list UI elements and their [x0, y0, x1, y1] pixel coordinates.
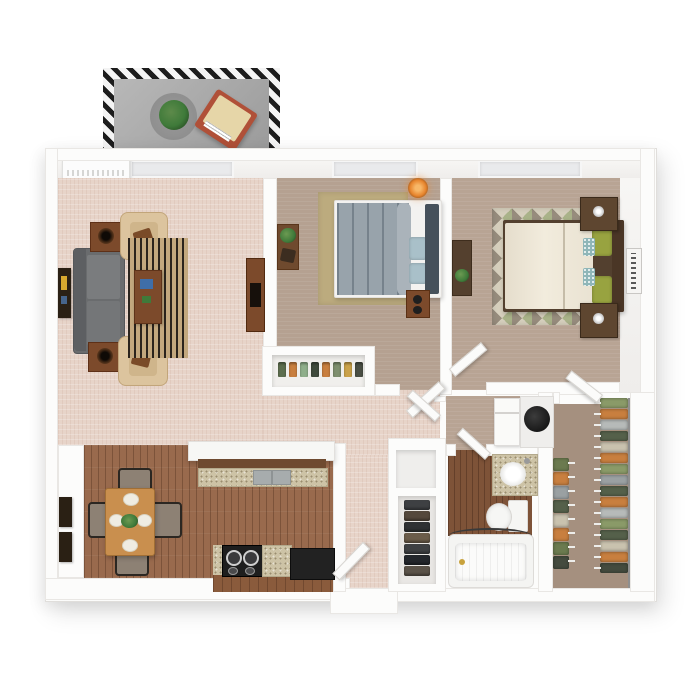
balcony-plant — [159, 100, 189, 130]
shoe-pair — [404, 555, 430, 565]
closet-rack-left — [553, 458, 569, 569]
coffee-table — [134, 270, 162, 324]
nightstand-lamp — [593, 313, 604, 324]
floor-plan — [0, 0, 697, 697]
desk-chair — [280, 248, 296, 264]
shoe-item — [322, 362, 330, 377]
desk-plant — [280, 228, 296, 243]
shoe-item — [355, 362, 363, 377]
kitchen-sink — [253, 470, 291, 485]
toilet-bowl — [486, 503, 512, 531]
counter-black-section — [290, 548, 335, 580]
shoe-item — [300, 362, 308, 377]
garment — [600, 563, 628, 573]
garment — [600, 497, 628, 507]
sink-faucet — [524, 458, 530, 464]
washer — [494, 398, 520, 446]
tv-console — [246, 258, 265, 332]
counter-granite-block — [262, 545, 292, 577]
shoe-item — [289, 362, 297, 377]
bathtub-basin — [455, 543, 527, 581]
master-desk — [452, 240, 472, 296]
garment — [600, 486, 628, 496]
master-pillow-green — [592, 276, 612, 304]
closet-rod — [628, 398, 630, 588]
stove-burner — [226, 550, 242, 566]
master-nightstand — [580, 197, 618, 231]
duvet-fold — [563, 223, 565, 309]
plate — [122, 539, 138, 552]
garment — [553, 472, 569, 485]
tv-console-screen — [250, 283, 261, 307]
shoe-item — [344, 362, 352, 377]
master-pillow-teal — [583, 268, 595, 286]
sink-divider — [271, 471, 273, 484]
shoe-item — [278, 362, 286, 377]
stove — [222, 545, 264, 577]
speaker-stand — [88, 342, 122, 372]
master-wall-plaque — [626, 248, 642, 294]
garment — [600, 442, 628, 452]
coat-closet-shelf — [396, 450, 436, 488]
bath-doorframe-stub — [446, 444, 456, 456]
nightstand-speaker — [413, 306, 422, 314]
washer-lid-line — [495, 412, 519, 414]
garment — [553, 514, 569, 527]
bathroom-vanity — [492, 454, 538, 496]
garment — [600, 552, 628, 562]
garment — [553, 486, 569, 499]
garment — [600, 398, 628, 408]
coffee-table-book — [140, 279, 153, 289]
table-centerpiece — [121, 514, 138, 528]
stove-burner-small — [245, 567, 255, 575]
shoe-item — [333, 362, 341, 377]
garment — [553, 458, 569, 471]
master-pillow-green — [592, 228, 612, 256]
plate — [137, 514, 152, 527]
shoe-pair — [404, 566, 430, 576]
garment — [553, 542, 569, 555]
outer-wall-top — [45, 148, 655, 161]
garment — [600, 464, 628, 474]
water-heater-closet — [520, 396, 554, 448]
shoe-pair — [404, 522, 430, 532]
nightstand-speaker — [413, 295, 422, 304]
master-desk-plant — [455, 269, 469, 282]
garment — [600, 420, 628, 430]
shoe-item — [311, 362, 319, 377]
master-duvet — [505, 223, 593, 309]
garment — [553, 528, 569, 541]
bedroom-bed — [334, 200, 442, 298]
bedroom-window — [332, 160, 418, 178]
plaque-text-lines — [631, 253, 636, 289]
garment — [553, 556, 569, 569]
speaker-cone — [98, 228, 114, 244]
closet-rack-right — [600, 398, 628, 573]
garment — [600, 475, 628, 485]
bathtub-drain — [459, 559, 465, 565]
hall-top-wall-stub — [375, 384, 400, 396]
living-bedroom-wall — [263, 178, 277, 348]
living-wall-art-detail2 — [61, 296, 67, 304]
closet-doorframe-left — [553, 392, 560, 404]
master-pillow-teal — [583, 238, 595, 256]
living-wall-art — [58, 268, 71, 318]
stove-burner-small — [228, 567, 238, 575]
bedside-lamp — [408, 178, 428, 198]
bed-headboard-cushion — [425, 204, 439, 294]
ac-unit-grille — [67, 170, 125, 176]
breakfast-bar-top — [188, 441, 335, 461]
garment — [600, 431, 628, 441]
shower-curtain-rod — [448, 528, 532, 544]
living-wall-art-detail — [61, 276, 67, 290]
coat-closet-shoe-rack — [404, 500, 430, 576]
garment — [600, 453, 628, 463]
bedroom-desk — [277, 224, 299, 270]
dining-wall-art — [59, 497, 72, 527]
shoe-pair — [404, 511, 430, 521]
water-heater — [524, 406, 550, 432]
master-bed — [503, 220, 624, 312]
bathroom-sink — [500, 462, 526, 486]
sofa-cushion — [87, 301, 120, 345]
sofa — [73, 248, 125, 354]
shoe-pair — [404, 533, 430, 543]
entry-floor — [346, 455, 388, 588]
bedroom-nightstand — [406, 290, 430, 318]
coffee-table-item — [142, 296, 151, 303]
garment — [600, 508, 628, 518]
garment — [553, 500, 569, 513]
closet-right-wall — [630, 392, 655, 592]
garment — [600, 541, 628, 551]
garment — [600, 409, 628, 419]
stove-burner — [243, 550, 259, 566]
dining-wall-art — [59, 532, 72, 562]
speaker-cone — [97, 348, 113, 364]
living-room-window — [130, 160, 234, 178]
garment — [600, 530, 628, 540]
master-window — [478, 160, 582, 178]
speaker-stand — [90, 222, 122, 252]
plate — [123, 493, 139, 506]
garment — [600, 519, 628, 529]
nightstand-lamp — [593, 206, 604, 217]
shoe-pair — [404, 544, 430, 554]
shoe-pair — [404, 500, 430, 510]
sofa-backrest — [74, 249, 86, 351]
counter-granite-sliver — [213, 545, 222, 575]
outer-wall-left — [45, 148, 58, 600]
bedroom-closet-shoes — [278, 362, 363, 377]
master-nightstand — [580, 303, 618, 338]
sofa-cushion — [87, 255, 120, 299]
master-headboard — [612, 220, 624, 312]
dining-table — [105, 488, 155, 556]
